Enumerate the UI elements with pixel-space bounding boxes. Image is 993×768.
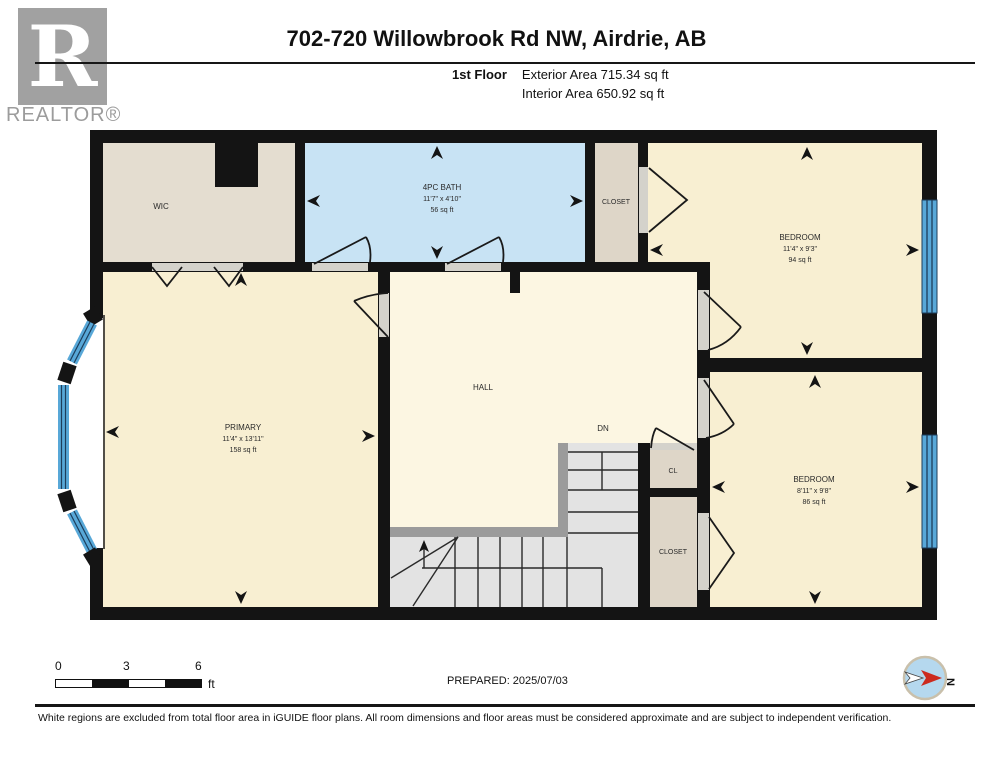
realtor-logo-text: REALTOR® <box>6 104 121 127</box>
compass: N <box>904 657 956 699</box>
label-stairs-dn: DN <box>597 424 609 433</box>
scale-bar: 0 3 6 ft <box>55 659 285 688</box>
label-bedroom-bottom-area: 86 sq ft <box>803 499 826 506</box>
window-bedroom-bottom <box>922 435 937 548</box>
label-bath-area: 56 sq ft <box>431 207 454 214</box>
label-wic: WIC <box>153 202 169 211</box>
scale-tick-3: 3 <box>123 659 130 673</box>
label-hall: HALL <box>473 383 494 392</box>
bay-wall-gap <box>90 318 103 548</box>
label-cl: CL <box>669 468 678 475</box>
stair-railing-horizontal <box>390 527 568 537</box>
floor-plan-canvas: WIC 4PC BATH 11'7" x 4'10" 56 sq ft CLOS… <box>0 0 993 768</box>
disclaimer-text: White regions are excluded from total fl… <box>38 712 968 724</box>
footer-divider <box>35 704 975 707</box>
label-primary-area: 158 sq ft <box>230 447 257 454</box>
compass-north-label: N <box>944 678 956 686</box>
label-bath-dims: 11'7" x 4'10" <box>423 196 461 203</box>
label-bedroom-top-dims: 11'4" x 9'3" <box>783 246 817 253</box>
interior-area: Interior Area 650.92 sq ft <box>522 86 669 101</box>
label-closet-bottom: CLOSET <box>659 549 688 556</box>
scale-bar-segments <box>55 679 202 688</box>
label-closet-top: CLOSET <box>602 199 631 206</box>
title-divider <box>35 62 975 64</box>
page-title: 702-720 Willowbrook Rd NW, Airdrie, AB <box>0 26 993 52</box>
room-wic <box>103 143 295 262</box>
label-bath-name: 4PC BATH <box>423 183 462 192</box>
realtor-logo: R <box>18 8 107 105</box>
label-bedroom-bottom-dims: 8'11" x 9'8" <box>797 488 831 495</box>
label-primary-name: PRIMARY <box>225 423 262 432</box>
label-bedroom-bottom-name: BEDROOM <box>793 475 835 484</box>
scale-unit: ft <box>208 677 215 691</box>
label-bedroom-top-name: BEDROOM <box>779 233 821 242</box>
scale-tick-0: 0 <box>55 659 62 673</box>
room-bedroom-top-lower <box>710 262 922 358</box>
stair-railing-vertical <box>558 443 568 535</box>
prepared-date: PREPARED: 2025/07/03 <box>447 675 568 687</box>
exterior-area: Exterior Area 715.34 sq ft <box>522 67 669 82</box>
label-primary-dims: 11'4" x 13'11" <box>222 436 264 443</box>
floor-plan: WIC 4PC BATH 11'7" x 4'10" 56 sq ft CLOS… <box>58 130 937 620</box>
room-bedroom-top <box>648 143 922 262</box>
window-bedroom-top <box>922 200 937 313</box>
scale-tick-labels: 0 3 6 <box>55 659 285 674</box>
floor-summary: 1st Floor Exterior Area 715.34 sq ft Int… <box>452 67 669 101</box>
scale-tick-6: 6 <box>195 659 202 673</box>
label-bedroom-top-area: 94 sq ft <box>789 257 812 264</box>
floor-label: 1st Floor <box>452 67 507 101</box>
wic-wall-notch <box>215 143 258 187</box>
